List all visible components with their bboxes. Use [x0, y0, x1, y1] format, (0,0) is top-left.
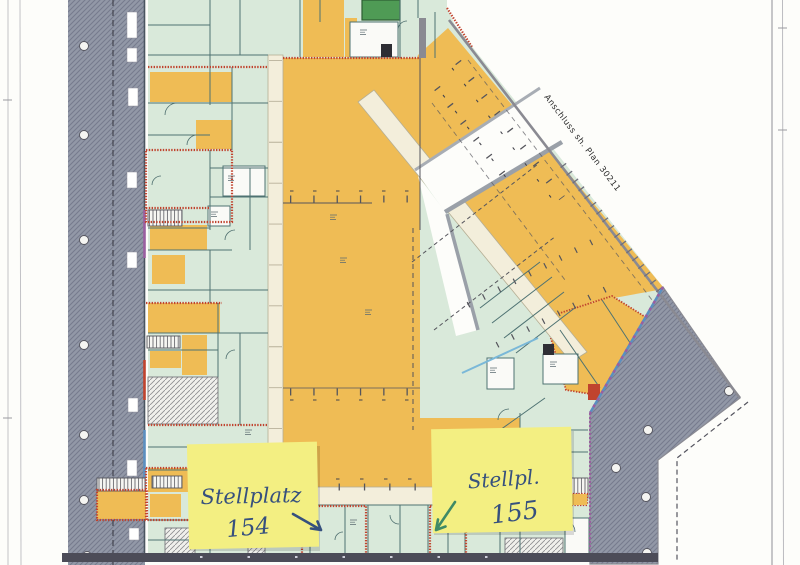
sticky-note-155: Stellpl. 155 [431, 427, 574, 535]
floor-plan-drawing: Anschluss sh. Plan 30211 Stellplatz 154 … [0, 0, 800, 565]
svg-text:Stellpl.: Stellpl. [467, 465, 540, 494]
svg-text:Stellplatz: Stellplatz [200, 483, 302, 509]
svg-text:154: 154 [225, 513, 271, 543]
scanned-floor-plan-page: Anschluss sh. Plan 30211 Stellplatz 154 … [0, 0, 800, 565]
green-room [362, 0, 400, 20]
bottom-wall-band [62, 553, 658, 562]
sticky-note-154: Stellplatz 154 [187, 442, 321, 551]
thick-wall [419, 18, 426, 58]
elevator-shaft-2 [543, 344, 554, 355]
svg-text:155: 155 [489, 495, 540, 530]
elevator-shaft [381, 44, 392, 57]
